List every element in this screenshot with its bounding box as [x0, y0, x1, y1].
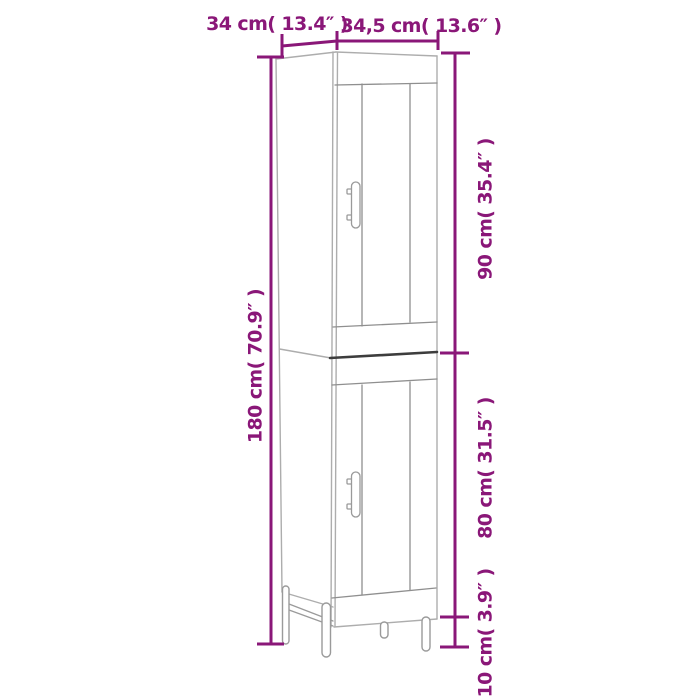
front-left-edge-inner [335, 53, 338, 626]
top-dim-line [282, 41, 438, 46]
front-left-leg [322, 603, 331, 657]
upper-door-bottom-line [333, 322, 437, 327]
lower-handle-bar [352, 472, 361, 517]
lower-door-bottom-line [332, 588, 436, 598]
front-left-edge-outer [331, 52, 333, 627]
front-top-edge [336, 52, 437, 56]
label-upper-height: 90 cm( 35.4″ ) [475, 138, 497, 280]
label-total-height: 180 cm( 70.9″ ) [245, 289, 267, 443]
cabinet-body-outline [276, 52, 437, 627]
lower-top-rail-line [332, 379, 437, 385]
middle-divider-line [330, 352, 437, 358]
upper-top-rail-line [335, 83, 437, 85]
dimension-diagram-canvas: 34 cm( 13.4″ ) 34,5 cm( 13.6″ ) 180 cm( … [0, 0, 700, 700]
door-frames [332, 83, 437, 598]
label-depth: 34 cm( 13.4″ ) [206, 13, 348, 35]
side-back-edge [276, 59, 282, 592]
upper-handle-bar [352, 182, 361, 228]
side-top-edge [276, 52, 336, 59]
dimension-labels: 34 cm( 13.4″ ) 34,5 cm( 13.6″ ) 180 cm( … [206, 13, 501, 698]
back-middle-leg [381, 622, 389, 638]
side-divider-seam [280, 349, 332, 358]
back-left-leg [283, 586, 290, 644]
front-right-leg [422, 617, 430, 651]
dimension-lines [257, 31, 470, 647]
cabinet-drawing [276, 52, 437, 657]
lower-door-handle [347, 472, 360, 517]
label-lower-height: 80 cm( 31.5″ ) [475, 397, 497, 539]
label-leg-height: 10 cm( 3.9″ ) [475, 568, 497, 697]
right-dimension-line [440, 53, 470, 647]
label-width: 34,5 cm( 13.6″ ) [341, 15, 502, 37]
product-dimension-diagram: 34 cm( 13.4″ ) 34,5 cm( 13.6″ ) 180 cm( … [0, 0, 700, 700]
upper-door-handle [347, 182, 360, 228]
